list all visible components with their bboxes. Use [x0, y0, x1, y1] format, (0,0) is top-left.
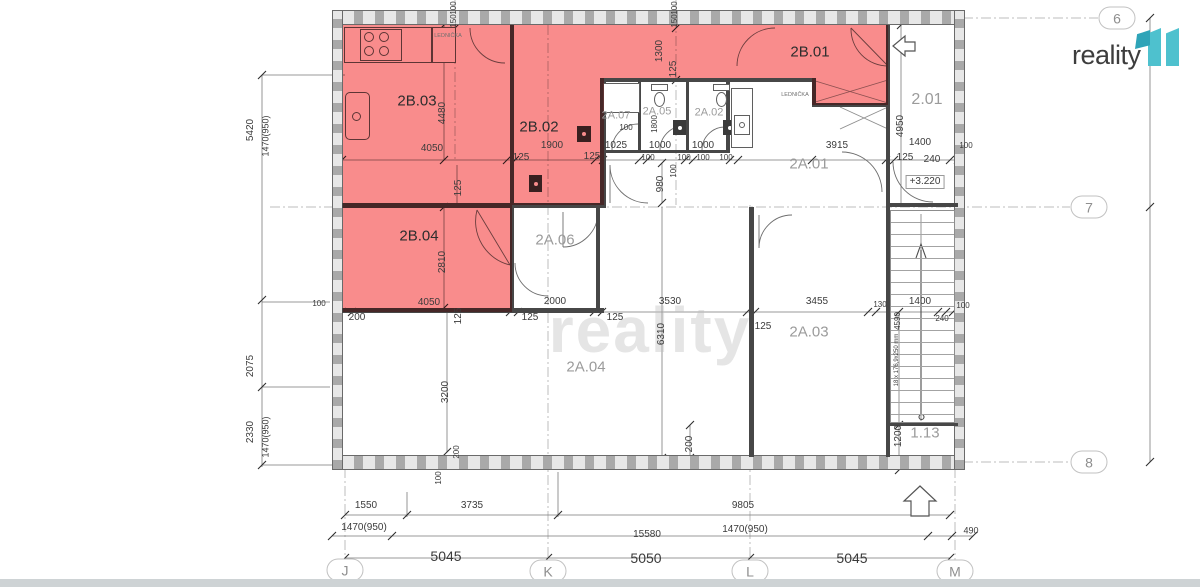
page-edge-strip [0, 579, 1200, 587]
dimension-label: 5045 [836, 551, 867, 565]
dimension-label: 5050 [630, 551, 661, 565]
exterior-wall-top [332, 10, 958, 25]
dimension-label: 1470(950) [262, 416, 271, 457]
dimension-label: 2075 [246, 355, 256, 377]
dimension-label: 18 x 176,9x250 mm [894, 334, 900, 387]
room-label: 2B.01 [790, 45, 829, 60]
dimension-label: 1400 [909, 138, 931, 148]
room-label: 2A.02 [695, 108, 724, 119]
highlight-unit-2b01 [512, 25, 888, 78]
dimension-label: 240 [924, 155, 941, 165]
dimension-label: 1900 [541, 141, 563, 151]
entry-arrow-icon [893, 36, 915, 56]
dimension-label: 125 [513, 153, 530, 163]
dimension-label: 150 [671, 14, 679, 27]
logo-text: reality [1072, 40, 1141, 71]
dimension-label: 125 [454, 308, 464, 325]
exterior-wall-right [954, 10, 965, 470]
dimension-label: 3915 [826, 141, 848, 151]
dimension-label: 1470(950) [262, 115, 271, 156]
dimension-label: 1300 [655, 40, 665, 62]
interior-wall [726, 82, 730, 152]
dimension-label: 5045 [430, 549, 461, 563]
dimension-label: 980 [656, 176, 666, 193]
dimension-label: 1470(950) [722, 525, 768, 535]
highlight-unit-2b01-niche [812, 78, 888, 105]
dimension-label: 150 [450, 14, 458, 27]
dimension-label: 3735 [461, 501, 483, 511]
watermark: reality [549, 293, 752, 367]
dimension-label: 100 [670, 164, 678, 177]
dimension-label: 125 [584, 152, 601, 162]
highlight-unit-2b03 [343, 25, 512, 205]
dimension-label: 2330 [246, 421, 256, 443]
dimension-label: 2000 [544, 297, 566, 307]
bathtub [603, 83, 640, 113]
room-label: 2A.05 [643, 107, 672, 118]
toilet-bowl [716, 92, 727, 107]
dimension-label: 125 [755, 322, 772, 332]
dimension-label: 125 [454, 180, 464, 197]
fixture-label: LEDNIČKA [781, 92, 809, 98]
washing-machine-icon [673, 120, 686, 135]
dimension-label: 100 [959, 142, 972, 150]
room-label: 2.01 [911, 92, 942, 108]
dimension-label: 1400 [909, 297, 931, 307]
dimension-label: 1550 [355, 501, 377, 511]
exterior-wall-left [332, 10, 343, 470]
dimension-label: 1000 [692, 141, 714, 151]
dimension-label: 125 [522, 313, 539, 323]
room-label: 2A.06 [535, 233, 574, 248]
dimension-label: 125 [669, 61, 679, 78]
dimension-label: 100 [641, 154, 654, 162]
dimension-label: 9805 [732, 501, 754, 511]
dimension-label: 5420 [246, 119, 256, 141]
dimension-label: 100 [956, 302, 969, 310]
interior-wall [686, 82, 689, 152]
dimension-label: 1200 [894, 425, 904, 447]
dimension-label: 3455 [806, 297, 828, 307]
dimension-label: 2810 [438, 251, 448, 273]
logo-mark-11-icon [1166, 28, 1179, 66]
dimension-label: 4480 [438, 102, 448, 124]
dimension-label: 490 [963, 527, 978, 536]
exterior-wall-bottom [332, 455, 958, 470]
room-label: 1.13 [910, 426, 939, 441]
dimension-label: 125 [607, 313, 624, 323]
dimension-label: 1000 [649, 141, 671, 151]
room-label: 2B.03 [397, 94, 436, 109]
grid-marker: 7 [1071, 196, 1108, 219]
logo-mark-flag-icon [1135, 30, 1150, 49]
floor-plan-canvas: reality reality 100150100150130012540504… [0, 0, 1200, 587]
dimension-label: 1800 [651, 115, 659, 133]
dimension-label: 1025 [605, 141, 627, 151]
dimension-label: 100 [312, 300, 325, 308]
dimension-label: 100 [671, 1, 679, 14]
dimension-label: 200 [685, 436, 695, 453]
fixture-label: LEDNIČKA [434, 33, 462, 39]
logo: reality [1072, 26, 1192, 70]
room-label: 2B.02 [519, 120, 558, 135]
dimension-label: 100 [619, 124, 632, 132]
room-label: 2A.01 [789, 157, 828, 172]
interior-wall [604, 78, 816, 82]
dimension-label: 3530 [659, 297, 681, 307]
room-label: 2A.03 [789, 325, 828, 340]
dimension-label: 100 [696, 154, 709, 162]
dimension-label: 100 [677, 154, 690, 162]
dimension-label: +3.220 [906, 175, 945, 189]
dimension-label: 3200 [441, 381, 451, 403]
dimension-label: 6310 [657, 323, 667, 345]
sink-drain-icon [739, 122, 745, 128]
north-arrow-icon [904, 486, 936, 516]
dimension-label: 15580 [633, 530, 661, 540]
dimension-label: 125 [897, 153, 914, 163]
dimension-label: 4050 [418, 298, 440, 308]
toilet-tank [713, 84, 730, 91]
dimension-label: 100 [450, 1, 458, 14]
dimension-label: 200 [453, 445, 461, 458]
dimension-label: 4590 [894, 312, 902, 330]
interior-wall [886, 203, 958, 207]
dimension-label: 100 [435, 471, 443, 484]
dimension-label: 4050 [421, 144, 443, 154]
dimension-label: 100 [719, 154, 732, 162]
highlight-unit-2b04 [343, 205, 512, 312]
grid-marker: 8 [1071, 451, 1108, 474]
room-label: 2A.04 [566, 360, 605, 375]
dimension-label: 240 [935, 315, 948, 323]
room-label: 2A.07 [602, 111, 631, 122]
dimension-label: 130 [873, 301, 886, 309]
dimension-label: 200 [349, 313, 366, 323]
room-label: 2B.04 [399, 229, 438, 244]
toilet-tank [651, 84, 668, 91]
dimension-label: 1470(950) [341, 523, 387, 533]
dimension-label: 4950 [896, 115, 906, 137]
